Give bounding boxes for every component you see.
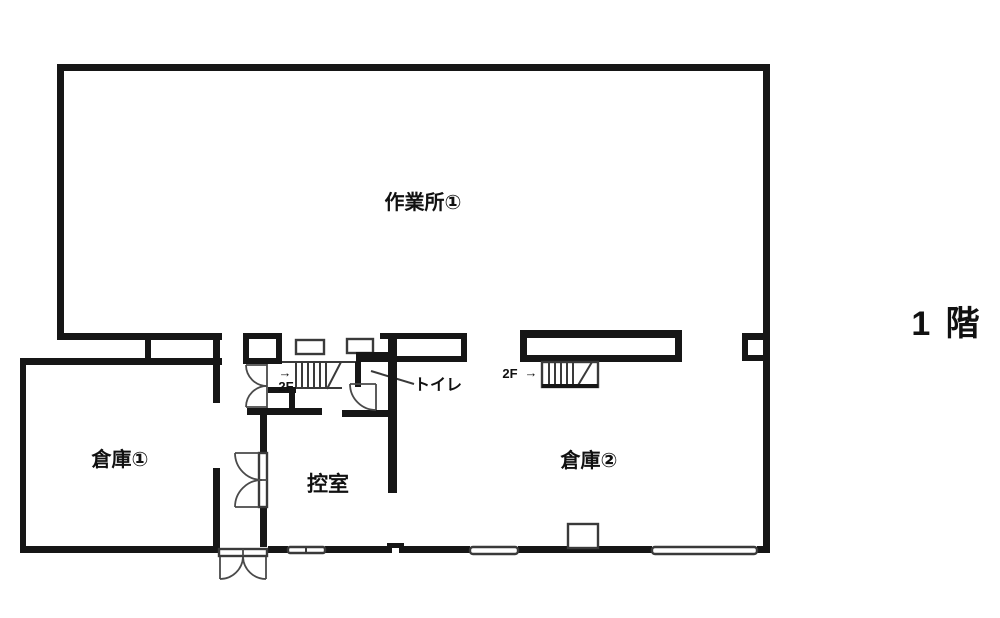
wall-cavity-connector: [145, 333, 151, 365]
waiting-west-wall-lower: [260, 507, 267, 547]
pillar-box-1: [296, 340, 324, 354]
door-swing-arc: [246, 365, 267, 386]
wall-bottom-seg4: [404, 546, 470, 553]
waiting-west-wall-upper: [260, 415, 267, 453]
east-stair-label: 2F: [502, 366, 517, 381]
wall-top: [57, 64, 770, 71]
workshop1-label: 作業所①: [385, 190, 462, 214]
waiting-room-double-door: [235, 453, 267, 507]
central-long-wall: [388, 333, 397, 493]
entrance-double-door: [219, 549, 267, 579]
wall-bottom-seg3: [325, 546, 387, 553]
door-swing-arc: [350, 384, 376, 410]
center-stair-hall: → 2F: [243, 333, 373, 415]
waiting-room-walls: 控室: [235, 333, 467, 547]
wall-bottom-seg6: [757, 546, 770, 553]
floor-plan-canvas: → 2F トイレ: [0, 0, 1000, 618]
window-2: [470, 547, 518, 554]
east-stair-arrow: →: [525, 365, 538, 380]
toilet-label: トイレ: [414, 377, 462, 394]
warehouse2-top-wall: [520, 330, 682, 362]
center-stair-label: 2F: [278, 379, 293, 394]
pillar-box-2: [347, 339, 373, 353]
toilet-door: [350, 384, 376, 410]
wall-left-workshop: [57, 64, 64, 340]
wall-warehouse1-east-upper: [213, 333, 220, 403]
warehouse2-label: 倉庫②: [560, 448, 618, 472]
toilet-bottom-wall: [342, 410, 390, 417]
east-stairs: [542, 362, 598, 387]
center-stairs: [295, 362, 342, 389]
stair-break-line: [327, 362, 341, 389]
wall-workshop-bottom-upper: [57, 333, 222, 340]
door-swing-arc: [246, 386, 267, 407]
center-stair-arrow: →: [279, 365, 292, 380]
waiting-room-label: 控室: [307, 472, 349, 496]
equipment-box: [568, 524, 598, 548]
window-3: [652, 547, 757, 554]
floor-title: 1 階: [911, 305, 982, 343]
wall-right: [763, 64, 770, 553]
wall-bottom-seg1: [20, 546, 218, 553]
warehouse2-structures: 2F →: [502, 330, 682, 548]
stair-hall-enclosure: [243, 333, 282, 364]
wall-warehouse1-east-lower: [213, 468, 220, 553]
wall-bottom-seg2: [268, 546, 288, 553]
door-swing-arc: [243, 557, 266, 579]
bottom-wall-notch: [387, 543, 404, 553]
floor-plan-page: → 2F トイレ: [0, 0, 1000, 618]
wall-warehouse1-left: [20, 358, 26, 553]
door-swing-arc: [220, 557, 243, 579]
stair-hall-double-door: [246, 364, 267, 408]
warehouse1-label: 倉庫①: [91, 447, 149, 471]
wall-warehouse1-top: [20, 358, 222, 365]
